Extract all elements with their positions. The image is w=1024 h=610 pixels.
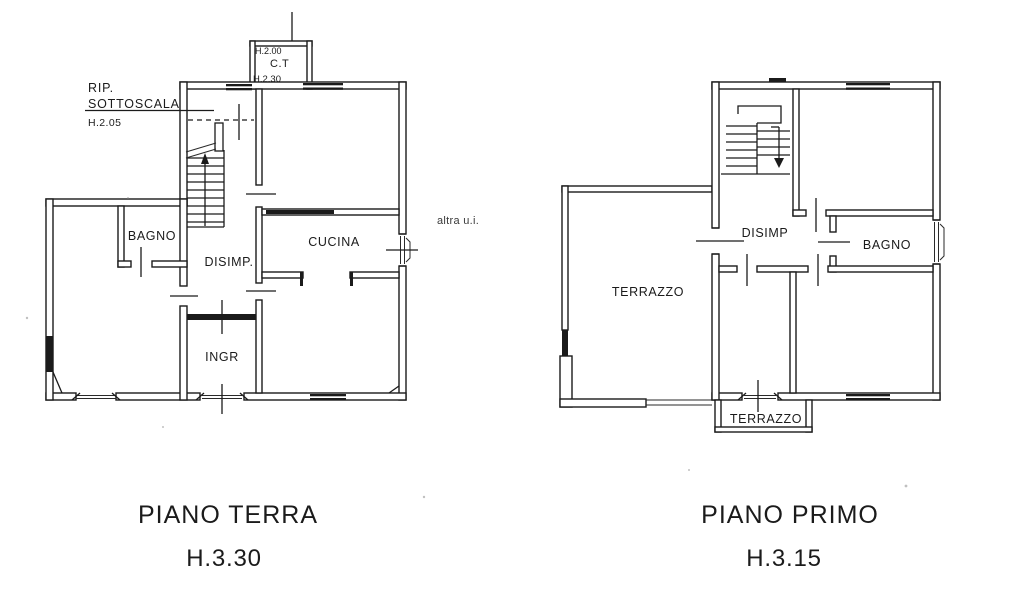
first-floor-height: H.3.15 bbox=[746, 545, 822, 572]
room-label-bagno-ground: BAGNO bbox=[128, 229, 176, 243]
ground-floor-title: PIANO TERRA bbox=[138, 501, 318, 529]
sottoscala-label: SOTTOSCALA bbox=[88, 97, 180, 111]
ground-floor-plan: RIP. SOTTOSCALA H.2.05 altra u.i. H.2.00… bbox=[46, 12, 479, 414]
rip-height-label: H.2.05 bbox=[88, 117, 121, 129]
room-label-disimp-first: DISIMP bbox=[742, 226, 789, 240]
room-label-terrazzo-bottom: TERRAZZO bbox=[730, 412, 802, 426]
first-floor-stairs bbox=[721, 106, 790, 174]
room-label-terrazzo: TERRAZZO bbox=[612, 285, 684, 299]
plan-titles: PIANO TERRA H.3.30 PIANO PRIMO H.3.15 bbox=[138, 501, 879, 572]
first-floor-doors bbox=[712, 228, 782, 400]
room-label-ingr: INGR bbox=[205, 350, 239, 364]
room-label-bagno-first: BAGNO bbox=[863, 238, 911, 252]
room-label-disimp-ground: DISIMP. bbox=[204, 255, 253, 269]
first-floor-title: PIANO PRIMO bbox=[701, 501, 879, 529]
ground-floor-stairs bbox=[186, 120, 254, 227]
ct-height-top-label: H.2.00 bbox=[255, 46, 282, 56]
stair-down-arrow bbox=[774, 158, 784, 168]
floorplan-scan: RIP. SOTTOSCALA H.2.05 altra u.i. H.2.00… bbox=[0, 0, 1024, 610]
rip-label: RIP. bbox=[88, 81, 114, 95]
first-floor-plan: TERRAZZO DISIMP BAGNO TERRAZZO bbox=[560, 78, 944, 432]
room-label-cucina: CUCINA bbox=[308, 235, 360, 249]
ct-height-bottom-label: H.2.30 bbox=[253, 74, 281, 85]
ground-floor-height: H.3.30 bbox=[186, 545, 262, 572]
altra-ui-label: altra u.i. bbox=[437, 215, 479, 227]
ct-name-label: C.T bbox=[270, 58, 289, 70]
